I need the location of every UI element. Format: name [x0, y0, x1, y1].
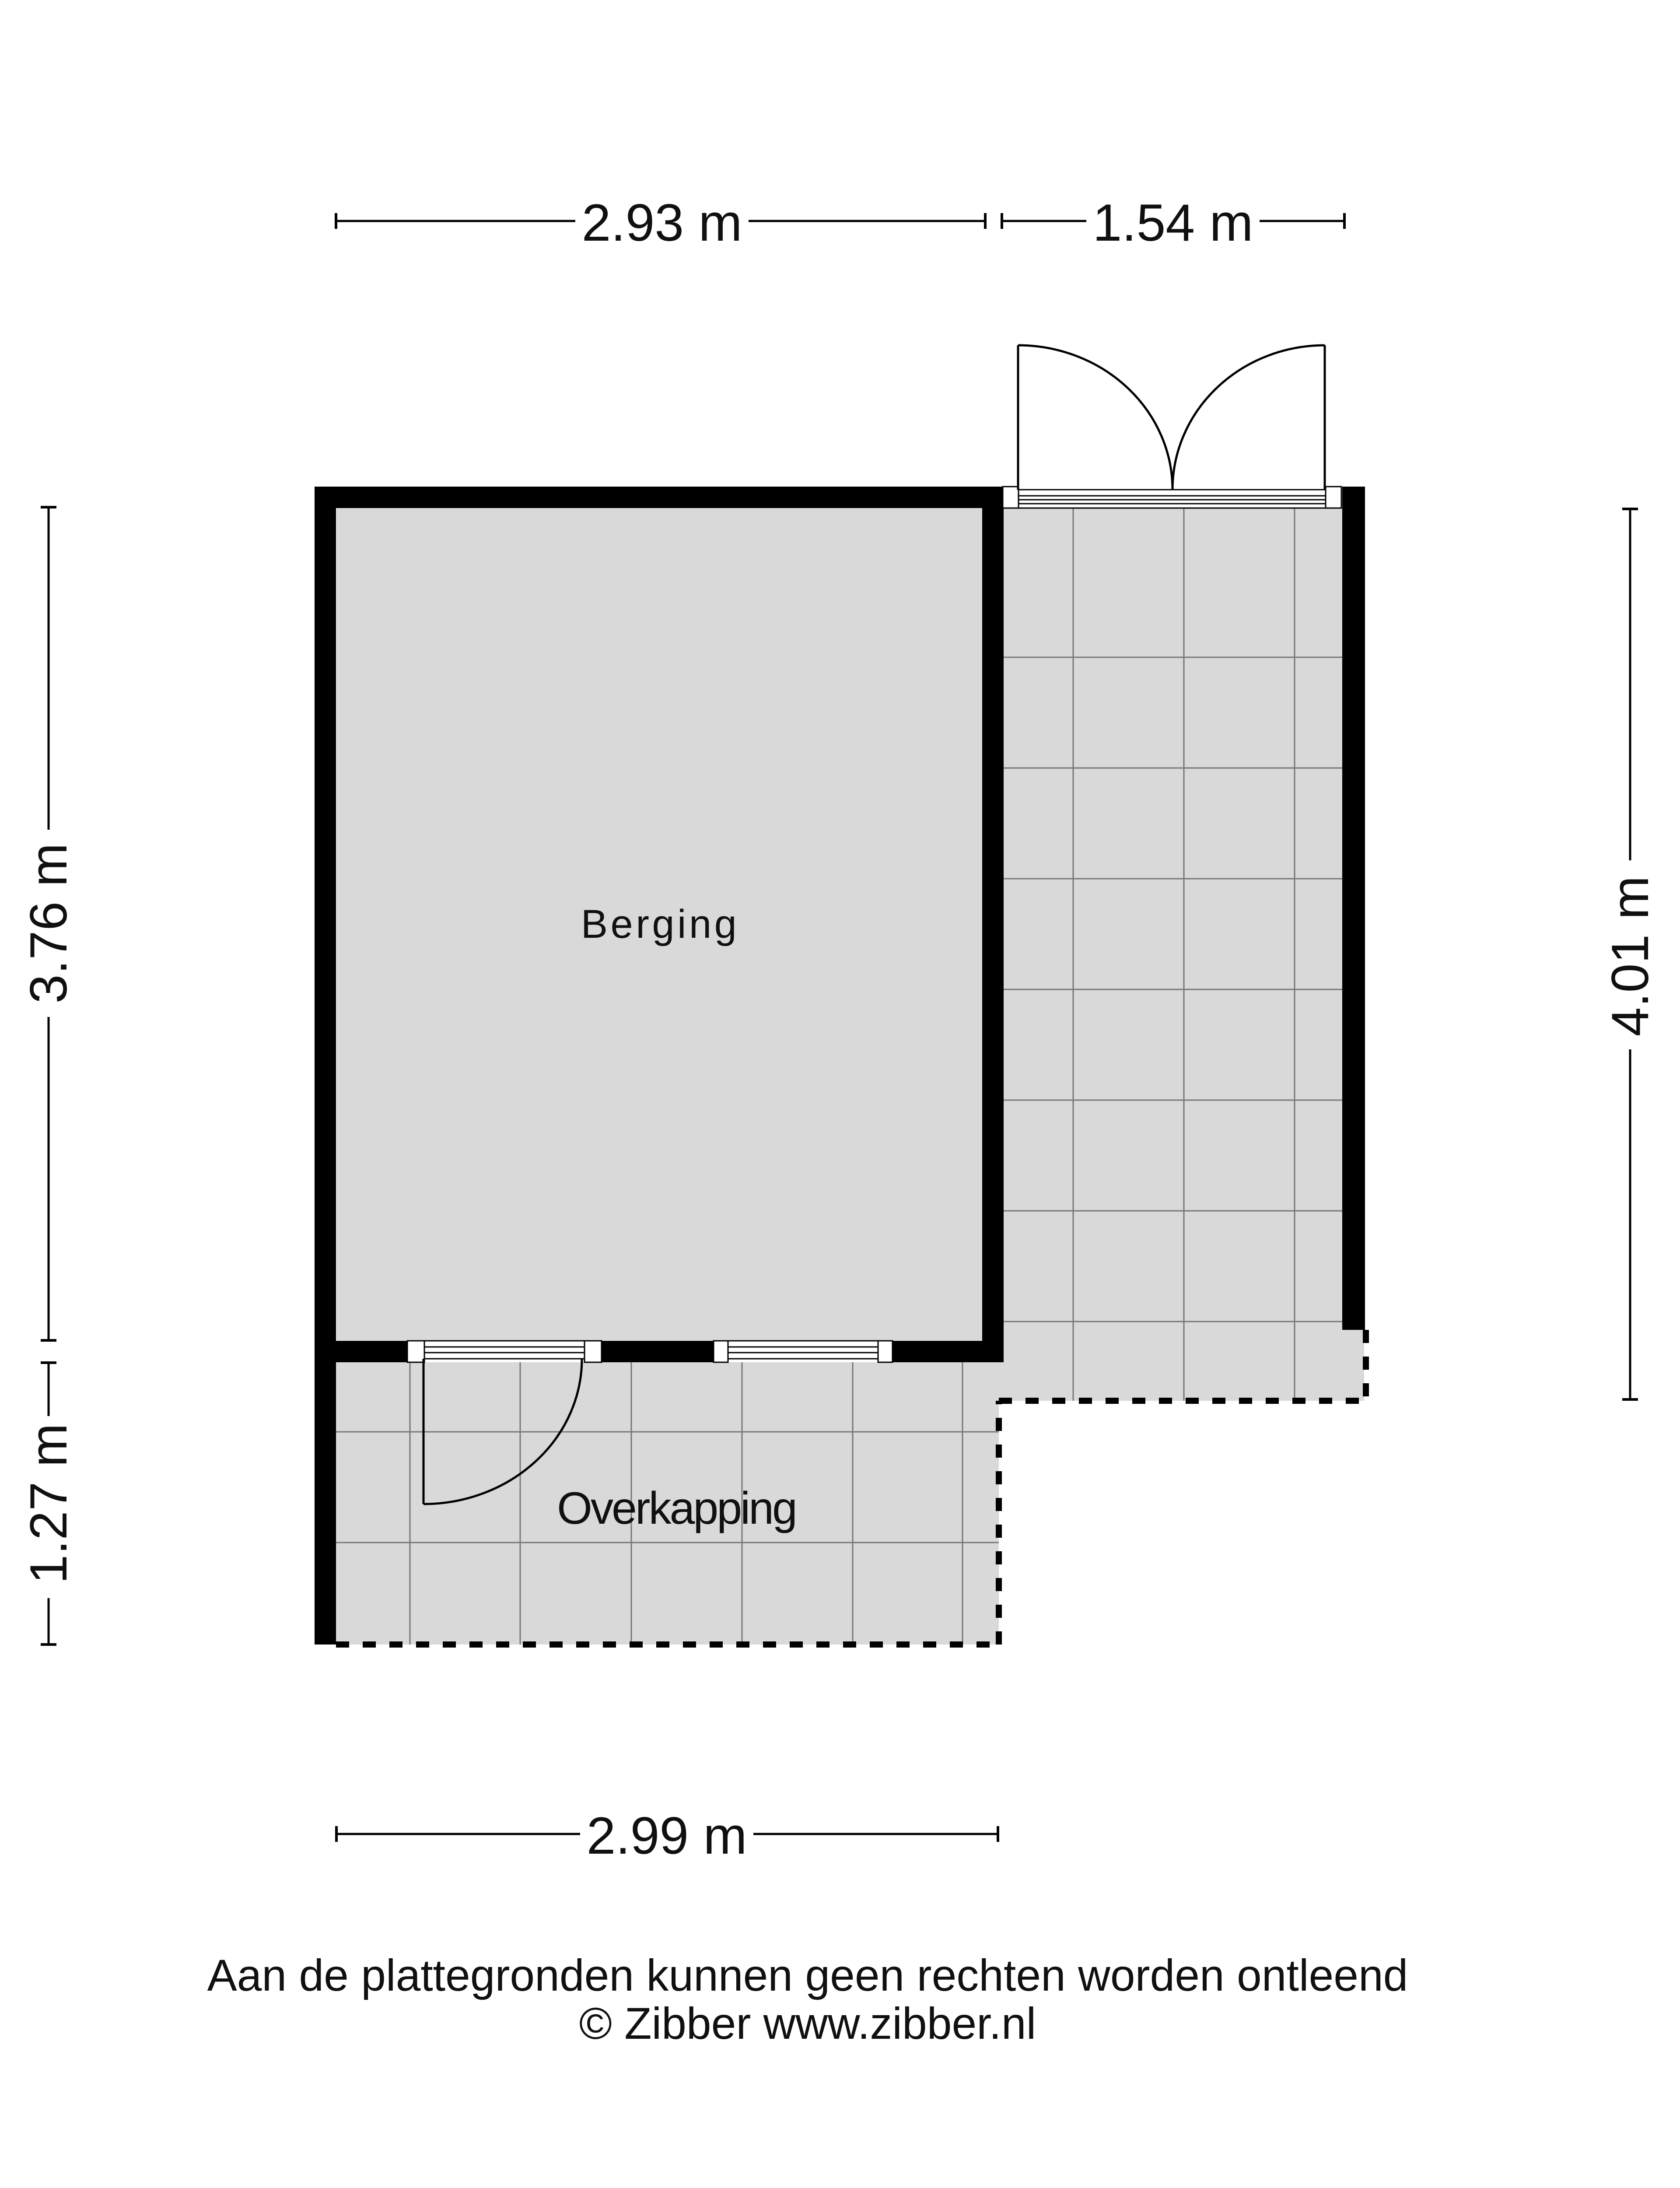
svg-text:3.76 m: 3.76 m — [19, 843, 78, 1004]
svg-text:© Zibber www.zibber.nl: © Zibber www.zibber.nl — [579, 1999, 1036, 2048]
svg-text:1.27 m: 1.27 m — [19, 1424, 78, 1584]
svg-text:1.54 m: 1.54 m — [1093, 193, 1253, 252]
svg-text:2.93 m: 2.93 m — [582, 193, 742, 252]
svg-text:Aan de plattegronden kunnen ge: Aan de plattegronden kunnen geen rechten… — [207, 1950, 1408, 2000]
svg-text:Overkapping: Overkapping — [557, 1483, 796, 1534]
svg-text:2.99 m: 2.99 m — [587, 1806, 747, 1865]
svg-text:Berging: Berging — [581, 902, 740, 947]
svg-text:4.01 m: 4.01 m — [1601, 876, 1659, 1037]
